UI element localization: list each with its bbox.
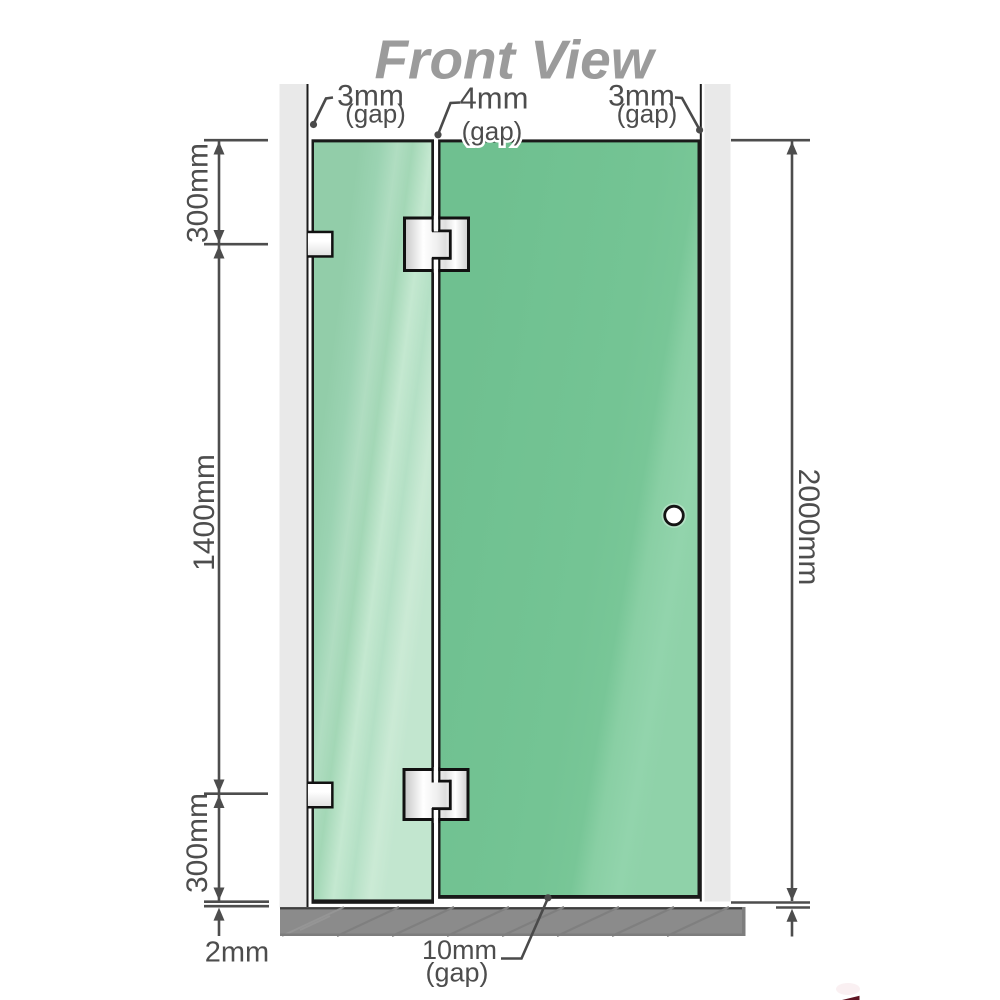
svg-text:(gap): (gap) <box>617 99 678 129</box>
svg-text:1400mm: 1400mm <box>188 454 221 571</box>
svg-text:300mm: 300mm <box>182 143 215 243</box>
svg-text:(gap): (gap) <box>345 99 406 129</box>
svg-text:Front View: Front View <box>374 29 656 91</box>
svg-text:300mm: 300mm <box>181 793 214 893</box>
svg-text:2mm: 2mm <box>205 937 269 969</box>
svg-text:2000mm: 2000mm <box>792 469 825 586</box>
svg-text:(gap): (gap) <box>425 958 488 988</box>
svg-text:(gap): (gap) <box>462 116 523 146</box>
